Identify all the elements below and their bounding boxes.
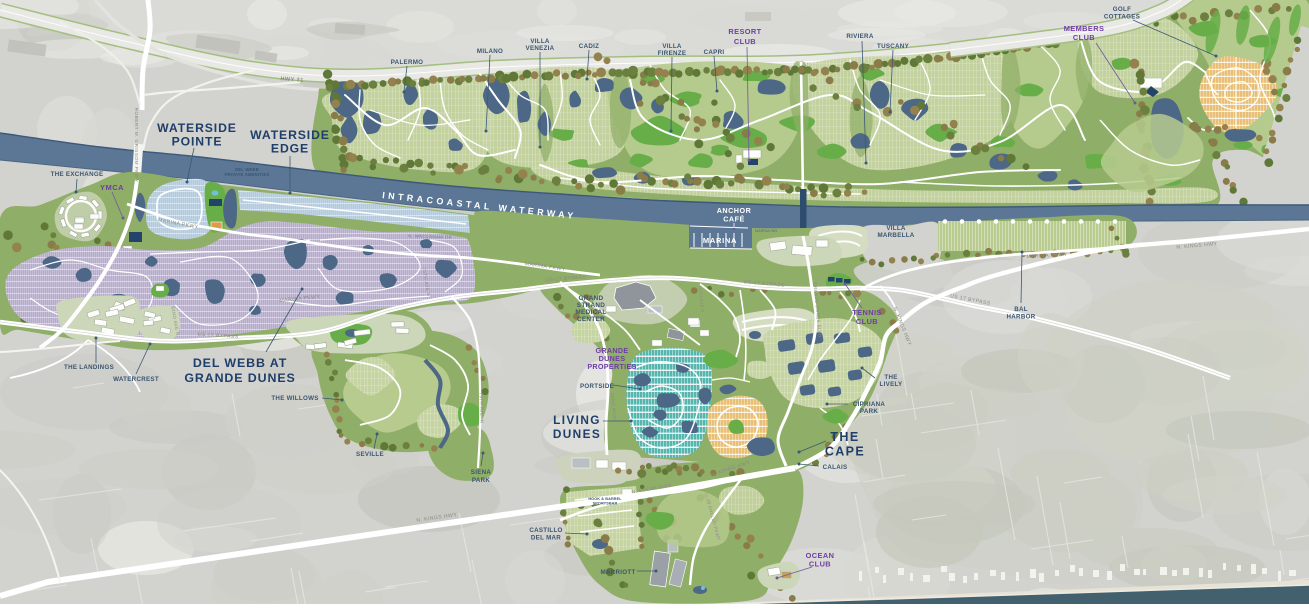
svg-text:POINTE: POINTE	[172, 135, 223, 149]
svg-text:VENEZIA: VENEZIA	[526, 45, 555, 52]
svg-text:GOLF: GOLF	[1113, 6, 1131, 13]
svg-text:THE WILLOWS: THE WILLOWS	[271, 395, 318, 402]
svg-text:THE EXCHANGE: THE EXCHANGE	[51, 171, 104, 178]
svg-text:LIVING: LIVING	[553, 413, 601, 427]
svg-text:PROPERTIES: PROPERTIES	[587, 362, 636, 371]
svg-text:DEL WEBB AT: DEL WEBB AT	[193, 356, 287, 370]
svg-text:MARINA INN: MARINA INN	[755, 229, 777, 233]
svg-text:PARK: PARK	[472, 477, 491, 484]
svg-text:RESORT: RESORT	[728, 27, 761, 36]
svg-text:MEMBERS: MEMBERS	[1064, 24, 1105, 33]
svg-text:CAPE: CAPE	[825, 445, 865, 459]
svg-text:MARINA: MARINA	[703, 236, 737, 245]
svg-text:SEVILLE: SEVILLE	[356, 451, 384, 458]
svg-text:WATERSIDE: WATERSIDE	[157, 121, 237, 135]
svg-text:MARRIOTT: MARRIOTT	[600, 569, 635, 576]
svg-text:EDGE: EDGE	[271, 141, 309, 155]
svg-text:CAFÉ: CAFÉ	[723, 215, 745, 224]
svg-text:STRAND: STRAND	[577, 302, 606, 309]
svg-text:HOOK & BARREL: HOOK & BARREL	[588, 497, 622, 501]
svg-text:GRANDE DUNES: GRANDE DUNES	[184, 371, 295, 385]
svg-text:FIRENZE: FIRENZE	[658, 50, 687, 57]
svg-text:DUNES: DUNES	[553, 427, 601, 441]
svg-text:CAPRI: CAPRI	[704, 49, 725, 56]
svg-text:WATERSIDE: WATERSIDE	[250, 128, 330, 142]
svg-text:CLUB: CLUB	[1073, 33, 1095, 42]
svg-text:MARBELLA: MARBELLA	[877, 232, 914, 239]
svg-text:GRAND: GRAND	[579, 295, 604, 302]
svg-text:HARBOR: HARBOR	[1007, 314, 1036, 321]
svg-text:VILLA: VILLA	[886, 225, 906, 232]
svg-text:PORTSIDE: PORTSIDE	[580, 383, 614, 390]
svg-text:SIENA: SIENA	[471, 469, 492, 476]
svg-text:PARK: PARK	[860, 408, 879, 415]
svg-text:THE: THE	[884, 374, 897, 381]
svg-text:LIVELY: LIVELY	[880, 381, 903, 388]
svg-text:THE LANDINGS: THE LANDINGS	[64, 364, 114, 371]
svg-text:CLUB: CLUB	[809, 560, 831, 569]
svg-text:CADIZ: CADIZ	[579, 43, 599, 50]
svg-text:CLUB: CLUB	[856, 317, 878, 326]
svg-text:CASTILLO: CASTILLO	[529, 527, 562, 534]
svg-text:ROBERT M. GRISSOM PKWY: ROBERT M. GRISSOM PKWY	[133, 108, 139, 183]
svg-text:CLUB: CLUB	[734, 37, 756, 46]
svg-text:MEDICAL: MEDICAL	[575, 309, 606, 316]
svg-text:BAL: BAL	[1014, 306, 1028, 313]
svg-text:DEL MAR: DEL MAR	[531, 535, 561, 542]
svg-text:THE: THE	[830, 430, 859, 444]
svg-text:COTTAGES: COTTAGES	[1104, 14, 1140, 21]
svg-text:CENTER: CENTER	[577, 316, 605, 323]
svg-text:PALERMO: PALERMO	[391, 59, 424, 66]
svg-text:RIVIERA: RIVIERA	[846, 33, 873, 40]
svg-text:SPORTSBAR: SPORTSBAR	[593, 501, 618, 505]
svg-text:VILLA: VILLA	[530, 38, 550, 45]
svg-text:MILANO: MILANO	[477, 48, 503, 55]
svg-text:VILLA: VILLA	[662, 43, 682, 50]
svg-text:TUSCANY: TUSCANY	[877, 43, 910, 50]
svg-text:CALAIS: CALAIS	[823, 464, 848, 471]
svg-text:WATERCREST: WATERCREST	[113, 376, 159, 383]
svg-text:PRIVATE AMENITIES: PRIVATE AMENITIES	[225, 172, 270, 177]
svg-text:CIPRIANA: CIPRIANA	[853, 401, 886, 408]
svg-text:YMCA: YMCA	[100, 183, 124, 192]
svg-text:TENNIS: TENNIS	[852, 308, 882, 317]
